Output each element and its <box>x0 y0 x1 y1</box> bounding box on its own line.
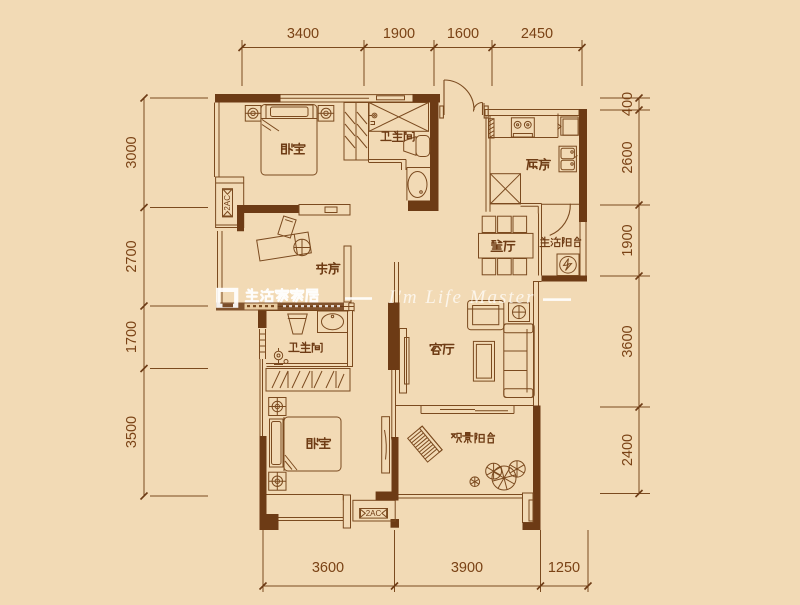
svg-text:3600: 3600 <box>620 325 636 357</box>
svg-text:I'm Life Master: I'm Life Master <box>388 287 536 308</box>
svg-text:3900: 3900 <box>451 560 483 576</box>
svg-text:1700: 1700 <box>124 321 140 353</box>
svg-text:1900: 1900 <box>383 26 415 42</box>
svg-text:3400: 3400 <box>287 26 319 42</box>
svg-text:3500: 3500 <box>124 416 140 448</box>
svg-text:3000: 3000 <box>124 136 140 168</box>
svg-text:1250: 1250 <box>548 560 580 576</box>
svg-text:2600: 2600 <box>620 141 636 173</box>
svg-text:1900: 1900 <box>620 224 636 256</box>
svg-text:1600: 1600 <box>447 26 479 42</box>
svg-text:2400: 2400 <box>620 434 636 466</box>
svg-text:3600: 3600 <box>312 560 344 576</box>
svg-text:2AC: 2AC <box>366 509 382 518</box>
svg-text:2AC: 2AC <box>223 195 232 211</box>
svg-text:2450: 2450 <box>521 26 553 42</box>
svg-text:400: 400 <box>620 92 636 116</box>
svg-text:2700: 2700 <box>124 240 140 272</box>
